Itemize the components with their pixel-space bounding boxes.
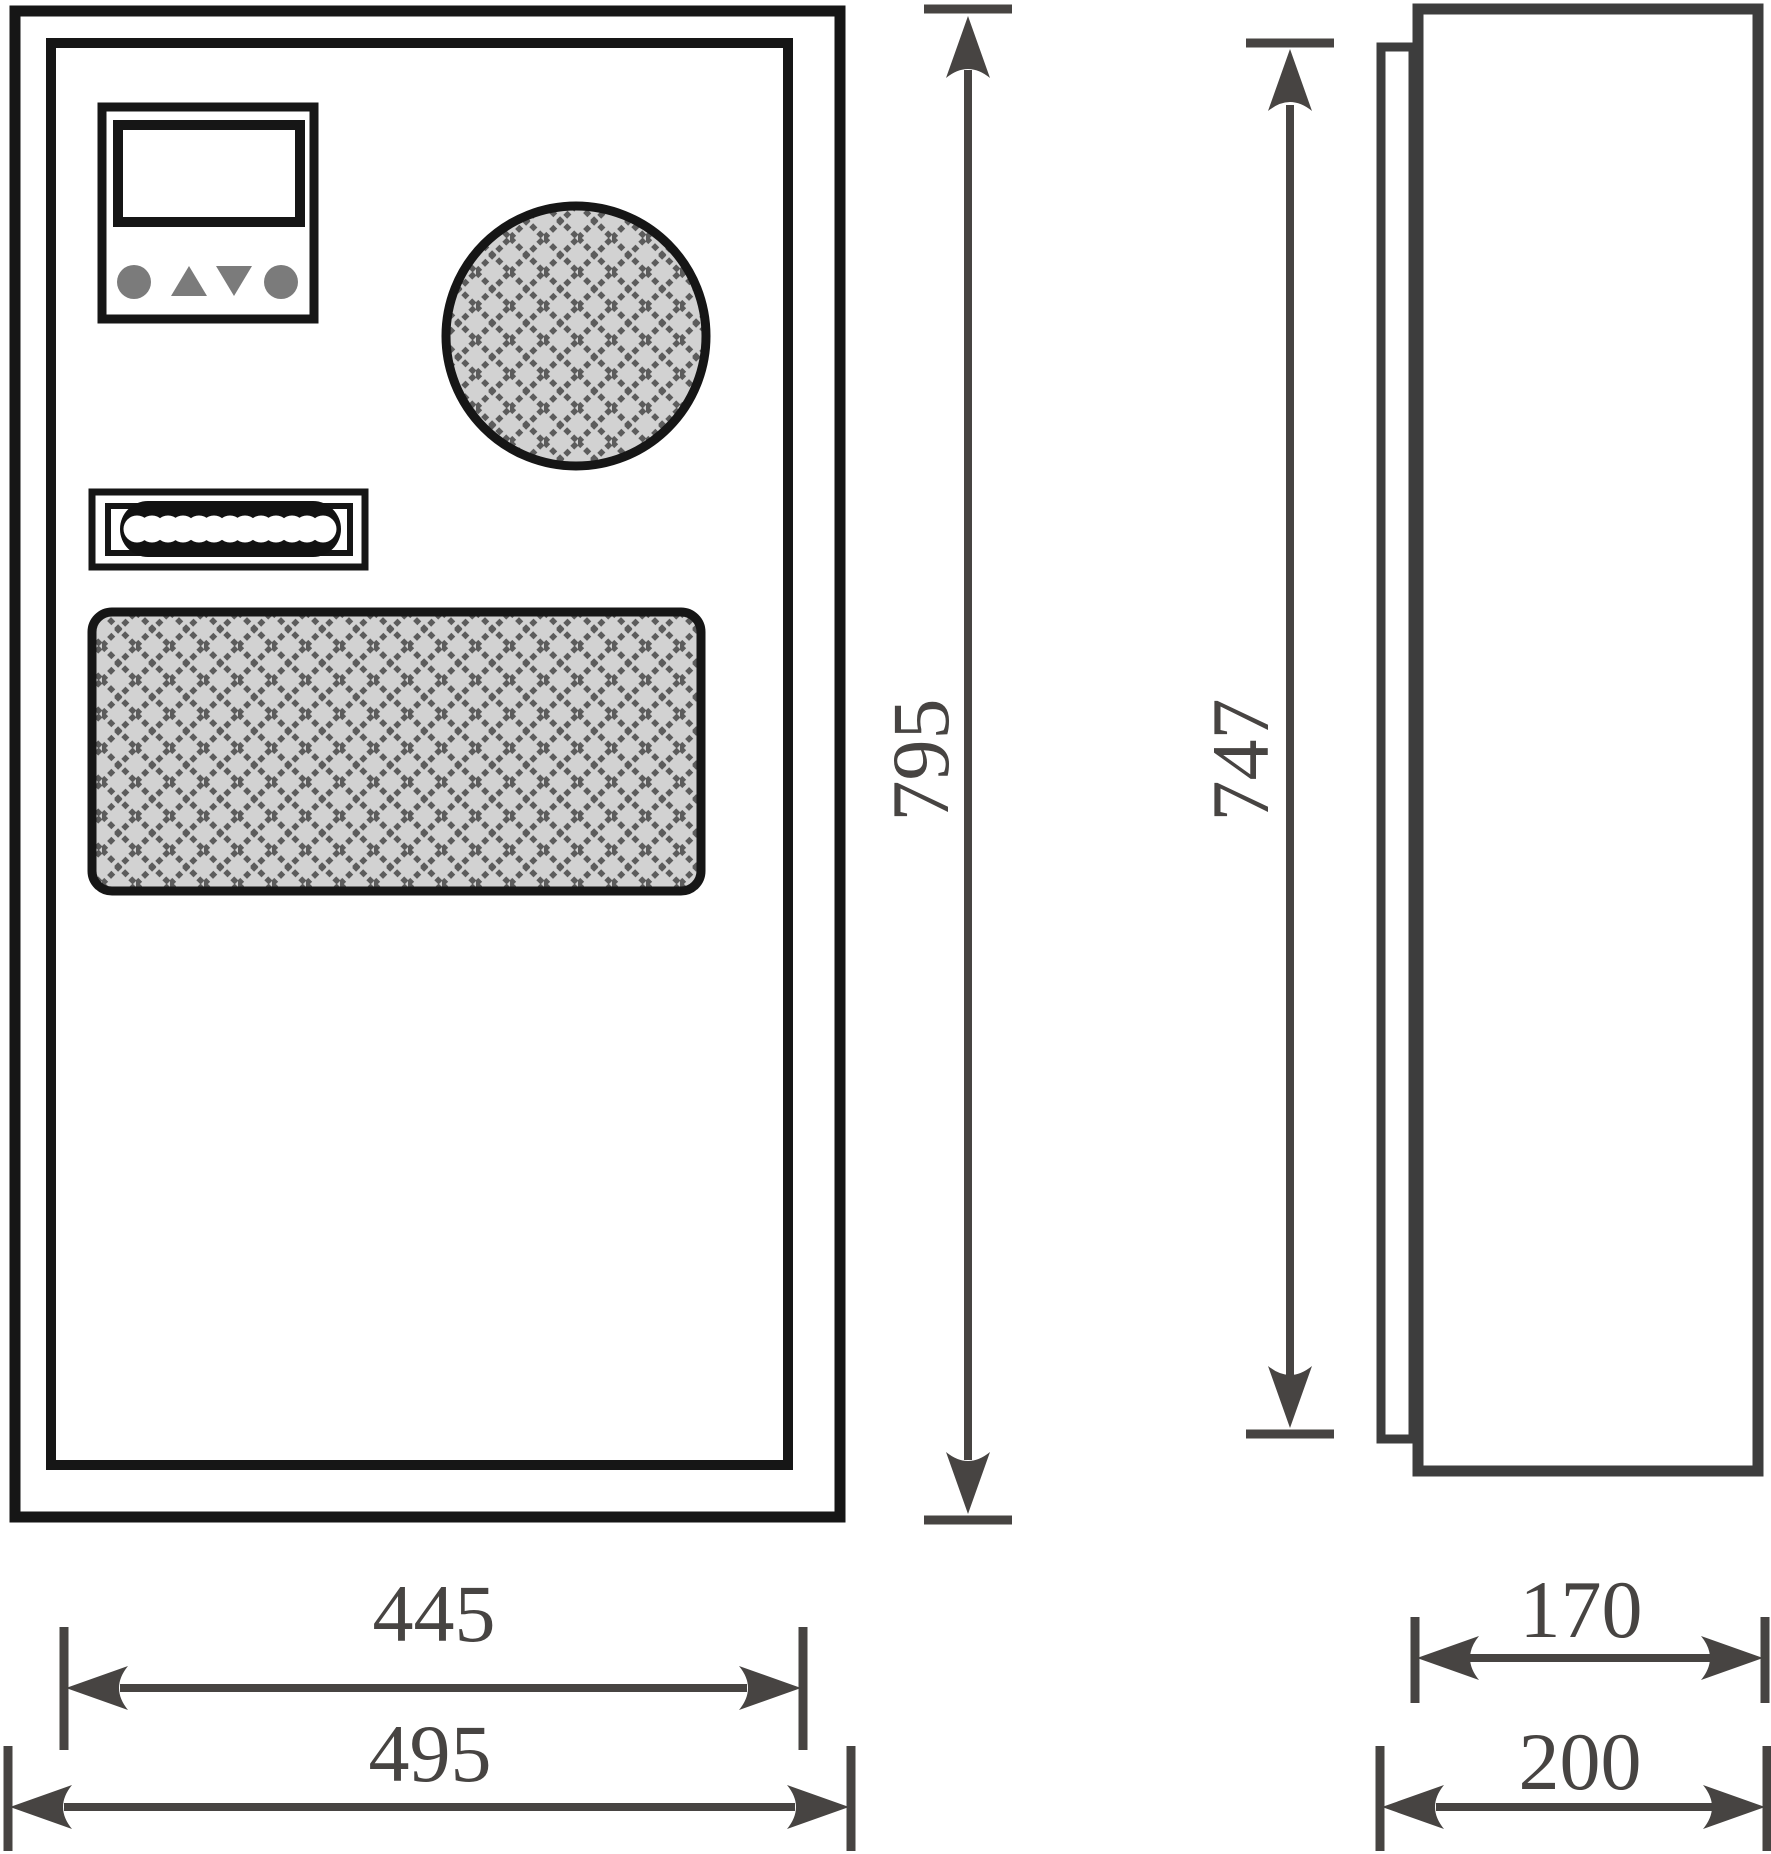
dimension-label-door-panel-height: 747 bbox=[1195, 699, 1286, 822]
arrowhead-left-icon bbox=[66, 1666, 128, 1710]
arrowhead-left-icon bbox=[10, 1785, 72, 1829]
arrowhead-left-icon bbox=[1417, 1636, 1479, 1680]
side-door-panel-outline bbox=[1381, 47, 1413, 1439]
temperature-controller bbox=[102, 107, 314, 319]
dimension-label-overall-width: 495 bbox=[369, 1708, 492, 1799]
dimension-body-depth: 170 bbox=[1415, 1564, 1765, 1703]
arrowhead-down-icon bbox=[946, 1452, 990, 1514]
dimension-label-door-width: 445 bbox=[373, 1568, 496, 1659]
side-body-outline bbox=[1418, 9, 1758, 1471]
arrowhead-down-icon bbox=[1268, 1366, 1312, 1428]
arrowhead-right-icon bbox=[739, 1666, 801, 1710]
dimension-overall-depth: 200 bbox=[1380, 1716, 1767, 1851]
drawing-sheet: 795 747 445 495 bbox=[0, 0, 1771, 1854]
dimension-label-overall-height: 795 bbox=[875, 699, 966, 822]
arrowhead-up-icon bbox=[1268, 49, 1312, 111]
dimension-label-body-depth: 170 bbox=[1520, 1564, 1643, 1655]
handle-grip-scallops bbox=[124, 516, 337, 543]
door-handle bbox=[92, 492, 365, 567]
arrowhead-right-icon bbox=[1701, 1636, 1763, 1680]
dimension-overall-height: 795 bbox=[875, 9, 1012, 1520]
controller-circle-button-icon bbox=[117, 265, 151, 299]
dimension-label-overall-depth: 200 bbox=[1519, 1716, 1642, 1807]
controller-circle-button-icon bbox=[264, 265, 298, 299]
rect-mesh-vent-icon bbox=[92, 612, 701, 891]
dimension-door-panel-height: 747 bbox=[1195, 43, 1334, 1434]
side-view bbox=[1381, 9, 1758, 1471]
round-mesh-vent-icon bbox=[446, 206, 706, 466]
arrowhead-up-icon bbox=[946, 16, 990, 78]
dimension-overall-width: 495 bbox=[8, 1708, 851, 1851]
arrowhead-right-icon bbox=[1703, 1785, 1765, 1829]
controller-display bbox=[118, 125, 300, 222]
arrowhead-left-icon bbox=[1382, 1785, 1444, 1829]
cabinet-dimension-drawing: 795 747 445 495 bbox=[0, 0, 1771, 1854]
arrowhead-right-icon bbox=[787, 1785, 849, 1829]
front-view bbox=[15, 11, 840, 1517]
